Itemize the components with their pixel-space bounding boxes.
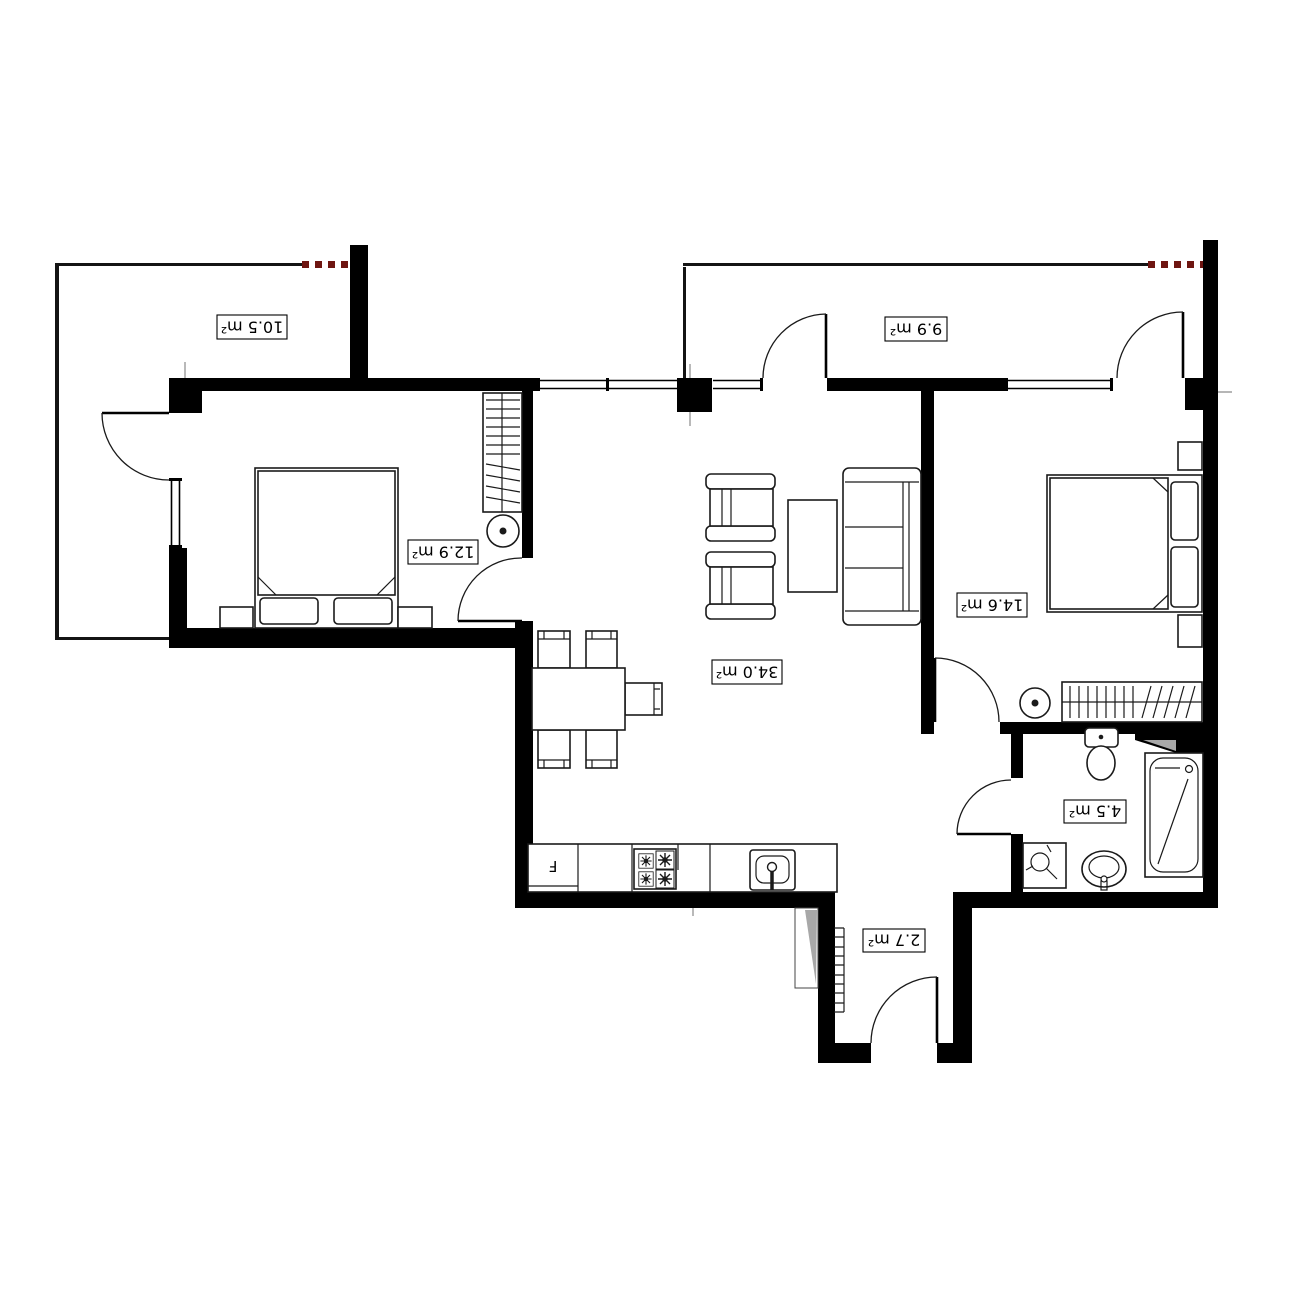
- armchair-icon: [706, 552, 775, 619]
- balcony-wall: [683, 263, 1148, 266]
- dining-chair-icon: [625, 683, 662, 715]
- door-arc: [1117, 312, 1183, 378]
- nightstand-icon: [1178, 615, 1202, 647]
- label-balcony-right: 9.9 m²: [890, 320, 943, 339]
- door-arc: [458, 558, 522, 621]
- nightstand-icon: [398, 607, 432, 628]
- door-arc: [102, 413, 169, 480]
- wall: [169, 628, 533, 648]
- wall: [169, 378, 202, 413]
- burner-icon: [656, 870, 674, 888]
- wall: [953, 892, 1218, 908]
- radiator-icon: [834, 928, 844, 1012]
- floor-plan-canvas: 10.5 m² 9.9 m² 12.9 m² 14.6 m² 34.0 m² 4…: [0, 0, 1300, 1300]
- wall: [827, 378, 1008, 391]
- mattress-icon: [258, 471, 395, 595]
- pillow-icon: [334, 598, 392, 624]
- bedroom-left-furniture: [220, 393, 522, 628]
- kitchen: [528, 844, 837, 892]
- nightstand-icon: [1178, 442, 1202, 470]
- coffee-table-icon: [788, 500, 837, 592]
- wall: [515, 892, 835, 908]
- label-hall: 2.7 m²: [868, 931, 921, 950]
- door-bedroom-left-balcony: [102, 413, 169, 480]
- dining-furniture: [532, 631, 662, 768]
- dining-chair-icon: [586, 730, 617, 768]
- kitchen-sink-icon: [750, 850, 795, 890]
- dining-table-icon: [532, 668, 625, 730]
- floor-lamp-dot: [500, 528, 507, 535]
- dining-chair-icon: [538, 730, 570, 768]
- dining-chair-icon: [586, 631, 617, 668]
- toilet-icon: [1085, 728, 1118, 780]
- balcony-wall: [55, 263, 302, 266]
- door-entrance: [871, 977, 937, 1043]
- burner-icon: [639, 872, 653, 886]
- mattress-icon: [1050, 478, 1168, 609]
- wall: [1203, 240, 1218, 908]
- walls: [169, 240, 1218, 1063]
- wall: [937, 1043, 972, 1063]
- burner-icon: [656, 851, 674, 869]
- wall: [677, 378, 712, 412]
- window: [1008, 381, 1113, 389]
- nightstand-icon: [220, 607, 253, 628]
- door-arc: [763, 314, 826, 378]
- door-bathroom: [957, 780, 1011, 834]
- washing-machine-icon: [1023, 843, 1066, 888]
- pillow-icon: [260, 598, 318, 624]
- window-cap: [169, 545, 182, 548]
- wall: [1011, 734, 1023, 778]
- window: [172, 481, 180, 545]
- door-arc: [935, 658, 999, 722]
- balcony-wall: [55, 637, 169, 640]
- window: [713, 381, 763, 389]
- door-living-balcony: [763, 314, 826, 378]
- balcony-wall: [683, 267, 686, 378]
- balcony-wall: [55, 263, 59, 640]
- wall: [953, 908, 972, 1063]
- door-arc: [957, 780, 1011, 834]
- label-living: 34.0 m²: [716, 663, 779, 682]
- wall: [350, 245, 368, 378]
- bedroom-right-furniture: [1020, 442, 1202, 722]
- label-balcony-left: 10.5 m²: [221, 318, 284, 337]
- armchair-icon: [706, 474, 775, 541]
- dining-chair-icon: [538, 631, 570, 668]
- label-bathroom: 4.5 m²: [1069, 802, 1122, 821]
- wall: [818, 1043, 871, 1063]
- wall: [1011, 834, 1023, 892]
- door-bedroom-left: [458, 558, 522, 621]
- door-bedroom-right-balcony: [1117, 312, 1183, 378]
- floor-lamp-dot: [1032, 700, 1039, 707]
- pillow-icon: [1171, 547, 1198, 607]
- living-room-furniture: [706, 468, 921, 625]
- bathtub-icon: [1145, 753, 1203, 877]
- label-bedroom-left: 12.9 m²: [412, 543, 475, 562]
- wall: [522, 391, 533, 558]
- door-arc: [871, 977, 937, 1043]
- pillow-icon: [1171, 482, 1198, 540]
- label-bedroom-right: 14.6 m²: [961, 596, 1024, 615]
- label-fridge: F: [549, 857, 558, 875]
- wall: [818, 908, 835, 1063]
- wall: [921, 378, 934, 734]
- doors: [102, 312, 1183, 1043]
- bath-sink-icon: [1082, 851, 1126, 890]
- window-cap: [169, 478, 182, 481]
- window-cap: [537, 378, 540, 391]
- wall: [202, 378, 540, 391]
- door-bedroom-right: [935, 658, 999, 722]
- burner-icon: [639, 854, 653, 868]
- floor-plan-page: 10.5 m² 9.9 m² 12.9 m² 14.6 m² 34.0 m² 4…: [0, 0, 1300, 1300]
- sofa-icon: [843, 468, 921, 625]
